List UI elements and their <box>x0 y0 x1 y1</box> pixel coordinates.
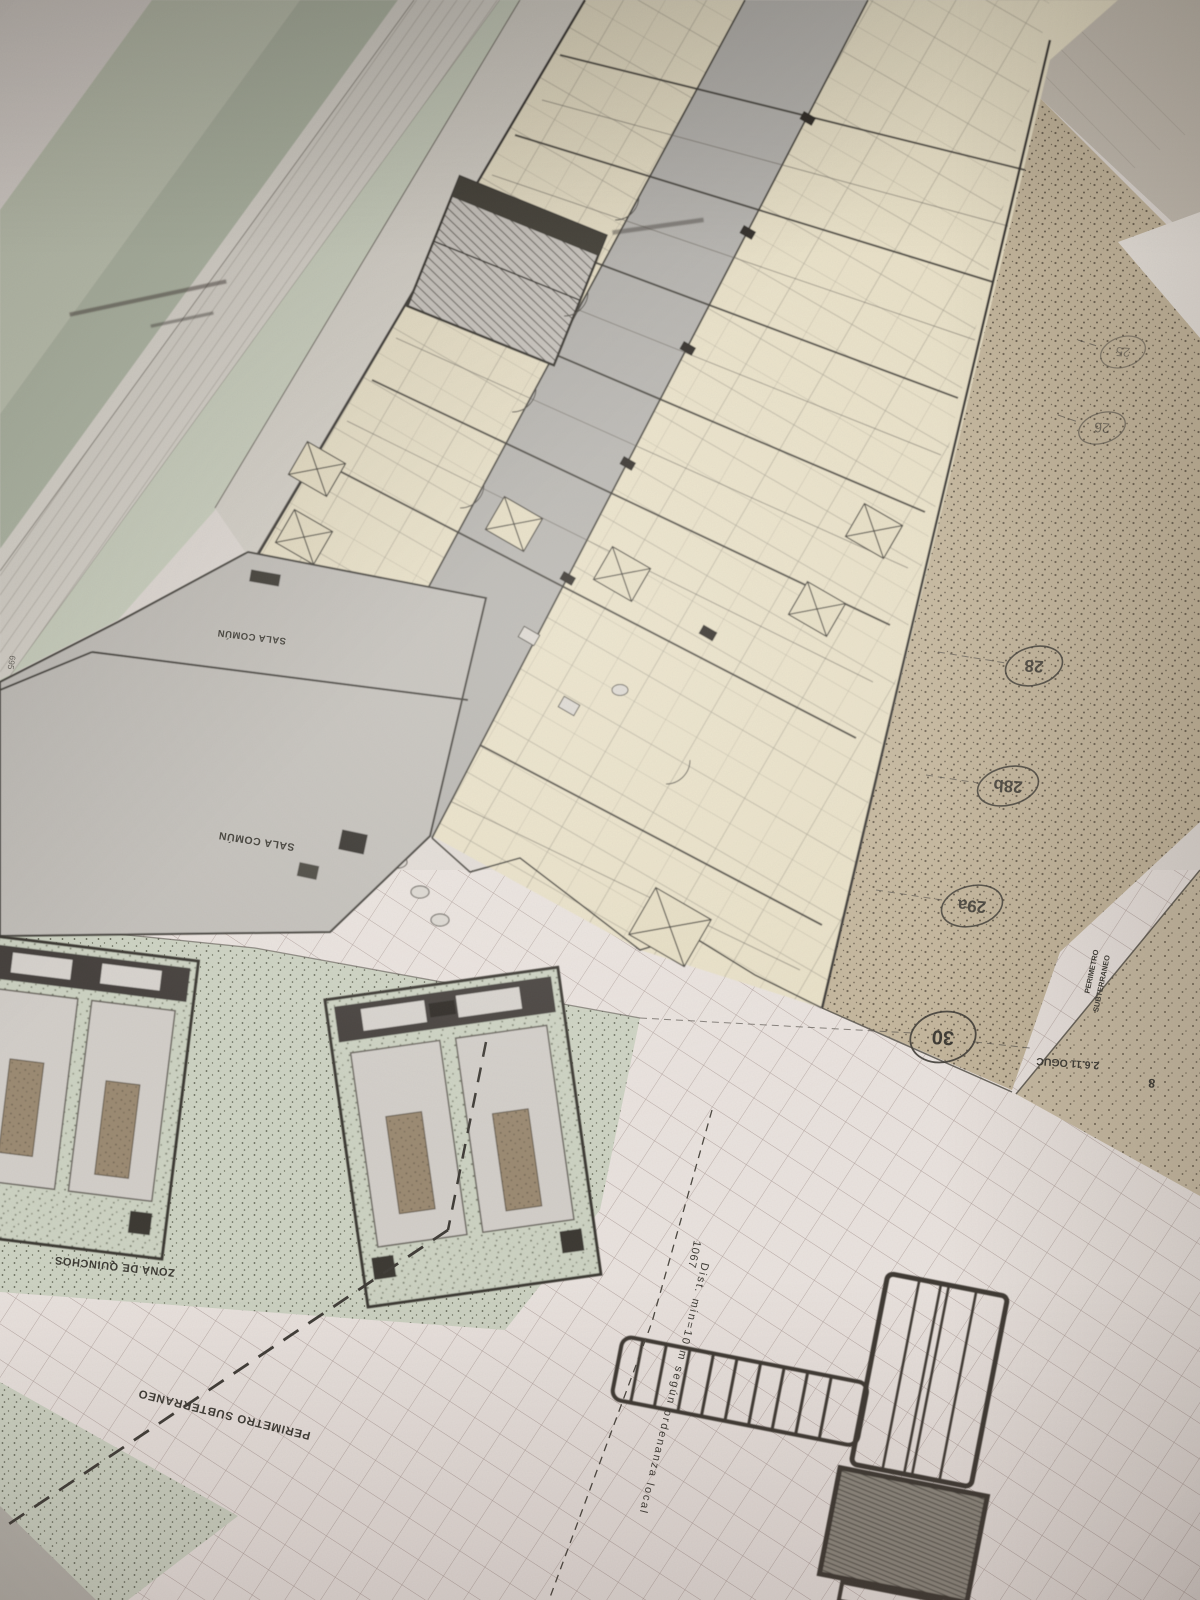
floorplan-drawing: 25 26 28 28b 29a 30 SALA COMÚN SALA COMÚ… <box>0 0 1200 1600</box>
paper-grain <box>0 0 1200 1600</box>
plan-photo: 25 26 28 28b 29a 30 SALA COMÚN SALA COMÚ… <box>0 0 1200 1600</box>
